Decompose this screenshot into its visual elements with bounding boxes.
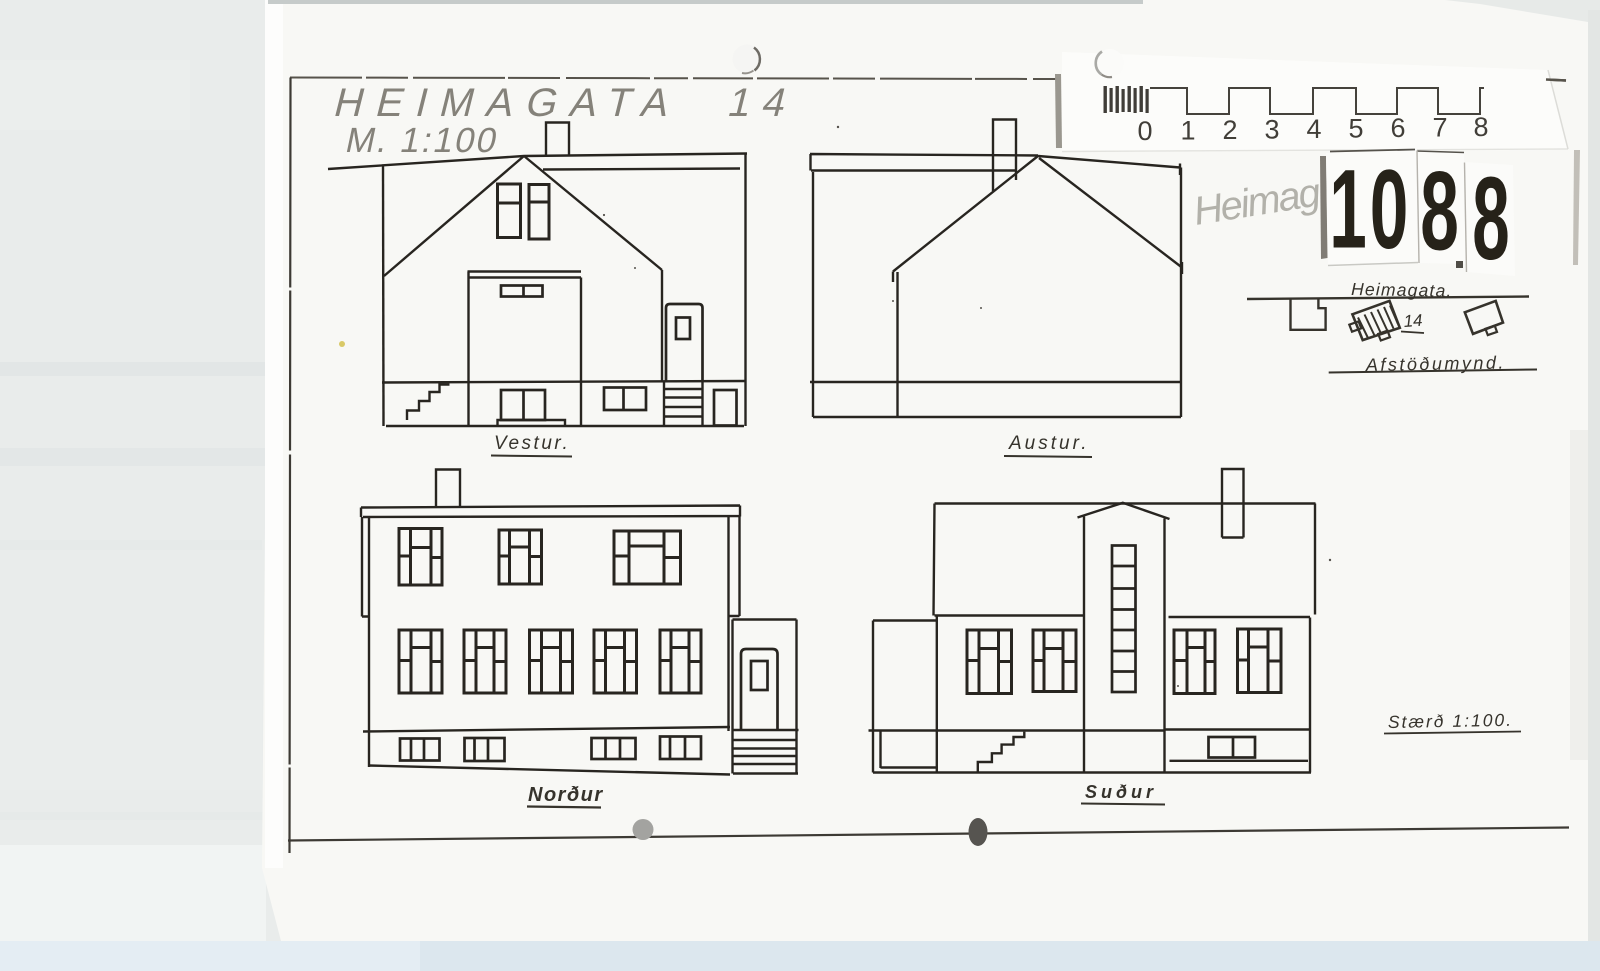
- svg-text:Vestur.: Vestur.: [494, 433, 570, 454]
- svg-text:8: 8: [1472, 153, 1509, 284]
- svg-text:1: 1: [1329, 146, 1366, 272]
- svg-text:0: 0: [1370, 147, 1409, 272]
- svg-text:Stærð 1:100.: Stærð 1:100.: [1388, 710, 1514, 732]
- svg-text:2: 2: [1222, 115, 1237, 145]
- svg-text:Norður: Norður: [528, 784, 604, 806]
- svg-text:1: 1: [1180, 116, 1195, 146]
- svg-text:14: 14: [724, 80, 804, 125]
- svg-text:Austur.: Austur.: [1008, 433, 1090, 454]
- svg-text:14: 14: [1403, 311, 1423, 331]
- svg-text:3: 3: [1264, 115, 1279, 145]
- svg-text:4: 4: [1306, 114, 1321, 144]
- svg-text:0: 0: [1137, 116, 1152, 146]
- svg-text:8: 8: [1420, 149, 1459, 274]
- svg-text:5: 5: [1348, 114, 1363, 144]
- svg-text:HEIMAGATA: HEIMAGATA: [330, 80, 688, 125]
- svg-text:M. 1:100: M. 1:100: [342, 121, 502, 160]
- svg-text:6: 6: [1390, 113, 1405, 143]
- svg-text:Suður: Suður: [1085, 782, 1157, 802]
- svg-text:8: 8: [1473, 112, 1488, 142]
- svg-text:7: 7: [1432, 113, 1447, 143]
